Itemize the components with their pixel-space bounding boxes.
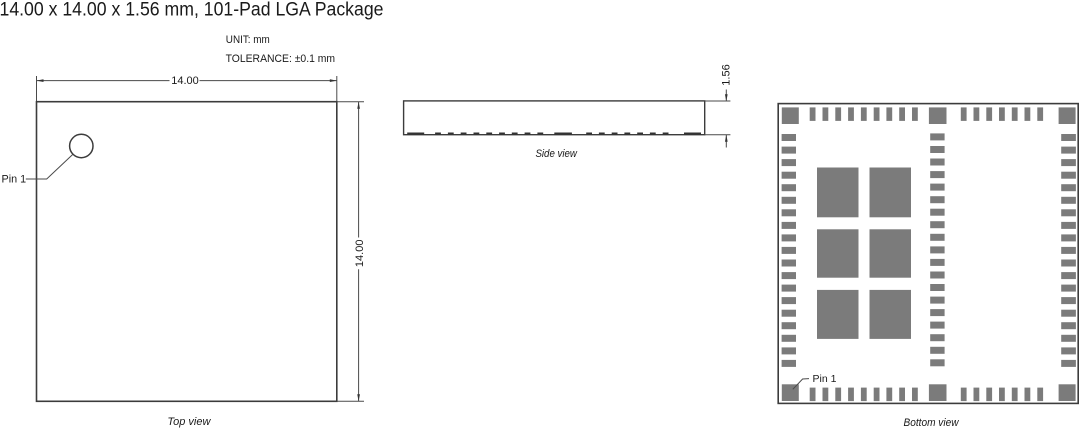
svg-text:Bottom view: Bottom view (904, 417, 960, 428)
svg-text:Top view: Top view (167, 416, 211, 428)
svg-text:Pin 1: Pin 1 (813, 373, 837, 385)
svg-text:UNIT: mm: UNIT: mm (226, 34, 270, 46)
svg-text:14.00: 14.00 (171, 75, 199, 87)
svg-text:1.56: 1.56 (720, 64, 732, 85)
svg-text:14.00: 14.00 (354, 240, 366, 268)
svg-text:14.00 x 14.00 x 1.56 mm, 101-P: 14.00 x 14.00 x 1.56 mm, 101-Pad LGA Pac… (0, 0, 384, 20)
svg-text:Side view: Side view (535, 148, 577, 160)
svg-text:Pin 1: Pin 1 (2, 174, 27, 186)
svg-text:TOLERANCE: ±0.1 mm: TOLERANCE: ±0.1 mm (226, 53, 336, 65)
